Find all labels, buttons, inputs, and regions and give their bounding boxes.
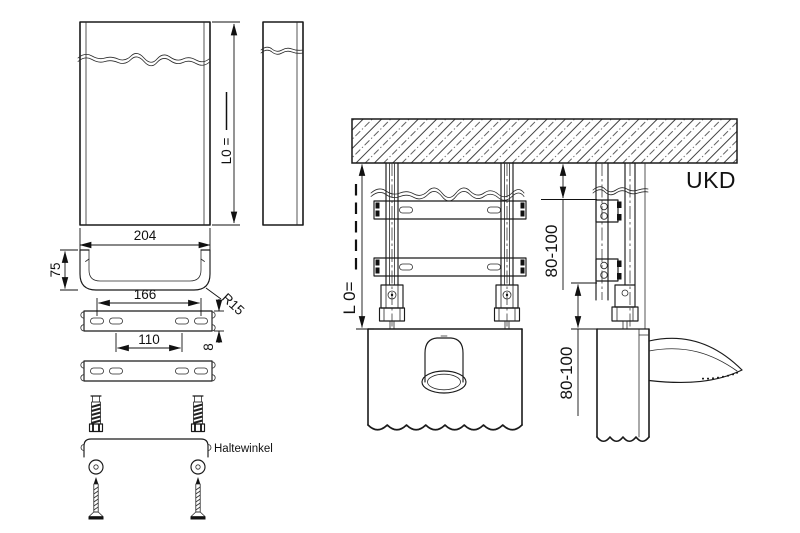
ceiling-section [352, 119, 737, 163]
screw-left [89, 477, 104, 520]
dim-panel-width-label: 204 [134, 228, 157, 243]
shower-head [422, 336, 466, 393]
shower-panel-side [597, 329, 649, 441]
supply-pipe-right [501, 163, 513, 327]
dimension-hole-spacing-inner: 110 [116, 332, 182, 352]
dim-corner-radius-label: R15 [219, 290, 247, 318]
ukd-label: UKD [686, 167, 736, 193]
dimension-offset-lower: 80-100 [557, 283, 597, 416]
technical-drawing-sheet: L0 = 204 75 R15 166 [0, 0, 800, 533]
valve-side [612, 285, 638, 329]
shower-spout [649, 338, 742, 382]
mounting-channel-section [80, 250, 210, 290]
dimension-offset-upper: 80-100 [541, 165, 597, 291]
dim-rail-thickness-label: 8 [201, 343, 216, 351]
dim-hole-spacing-inner-label: 110 [138, 332, 160, 347]
dim-panel-length-label: L0 = [219, 138, 234, 165]
washer-right [191, 460, 205, 474]
dimension-panel-width: 204 [80, 228, 210, 250]
dimension-panel-length: L0 = [212, 22, 240, 225]
mounting-rail-2 [81, 361, 215, 381]
washer-left [89, 460, 103, 474]
haltewinkel-label: Haltewinkel [214, 443, 273, 455]
fixing-bracket-lower-side [596, 259, 622, 281]
rail-lower-front [374, 258, 526, 276]
panel-front-view [78, 22, 210, 225]
screw-right [191, 477, 206, 520]
dimension-hole-spacing-outer: 166 [97, 287, 201, 316]
wall-anchor-left [90, 396, 103, 432]
mounting-rail-1 [81, 311, 215, 331]
shower-panel-front [368, 329, 522, 430]
dim-hole-spacing-outer-label: 166 [134, 287, 157, 302]
haltewinkel-bracket: Haltewinkel [81, 439, 273, 457]
wall-anchor-right [192, 396, 205, 432]
fixing-bracket-upper-side [596, 200, 622, 222]
installation-side-view [593, 163, 742, 441]
installation-front-view [368, 163, 526, 430]
rail-upper-front [374, 201, 526, 219]
technical-drawing: L0 = 204 75 R15 166 [0, 0, 800, 533]
panel-side-view [261, 22, 303, 225]
side-pipe-front [596, 163, 608, 300]
dim-offset-upper-label: 80-100 [542, 225, 561, 278]
dimension-install-length: L 0= [340, 165, 374, 330]
dimension-channel-height: 75 [48, 250, 78, 290]
dim-channel-height-label: 75 [48, 262, 63, 277]
dim-install-length-label: L 0= [340, 281, 359, 314]
supply-pipe-left [386, 163, 398, 327]
dim-offset-lower-label: 80-100 [557, 347, 576, 400]
